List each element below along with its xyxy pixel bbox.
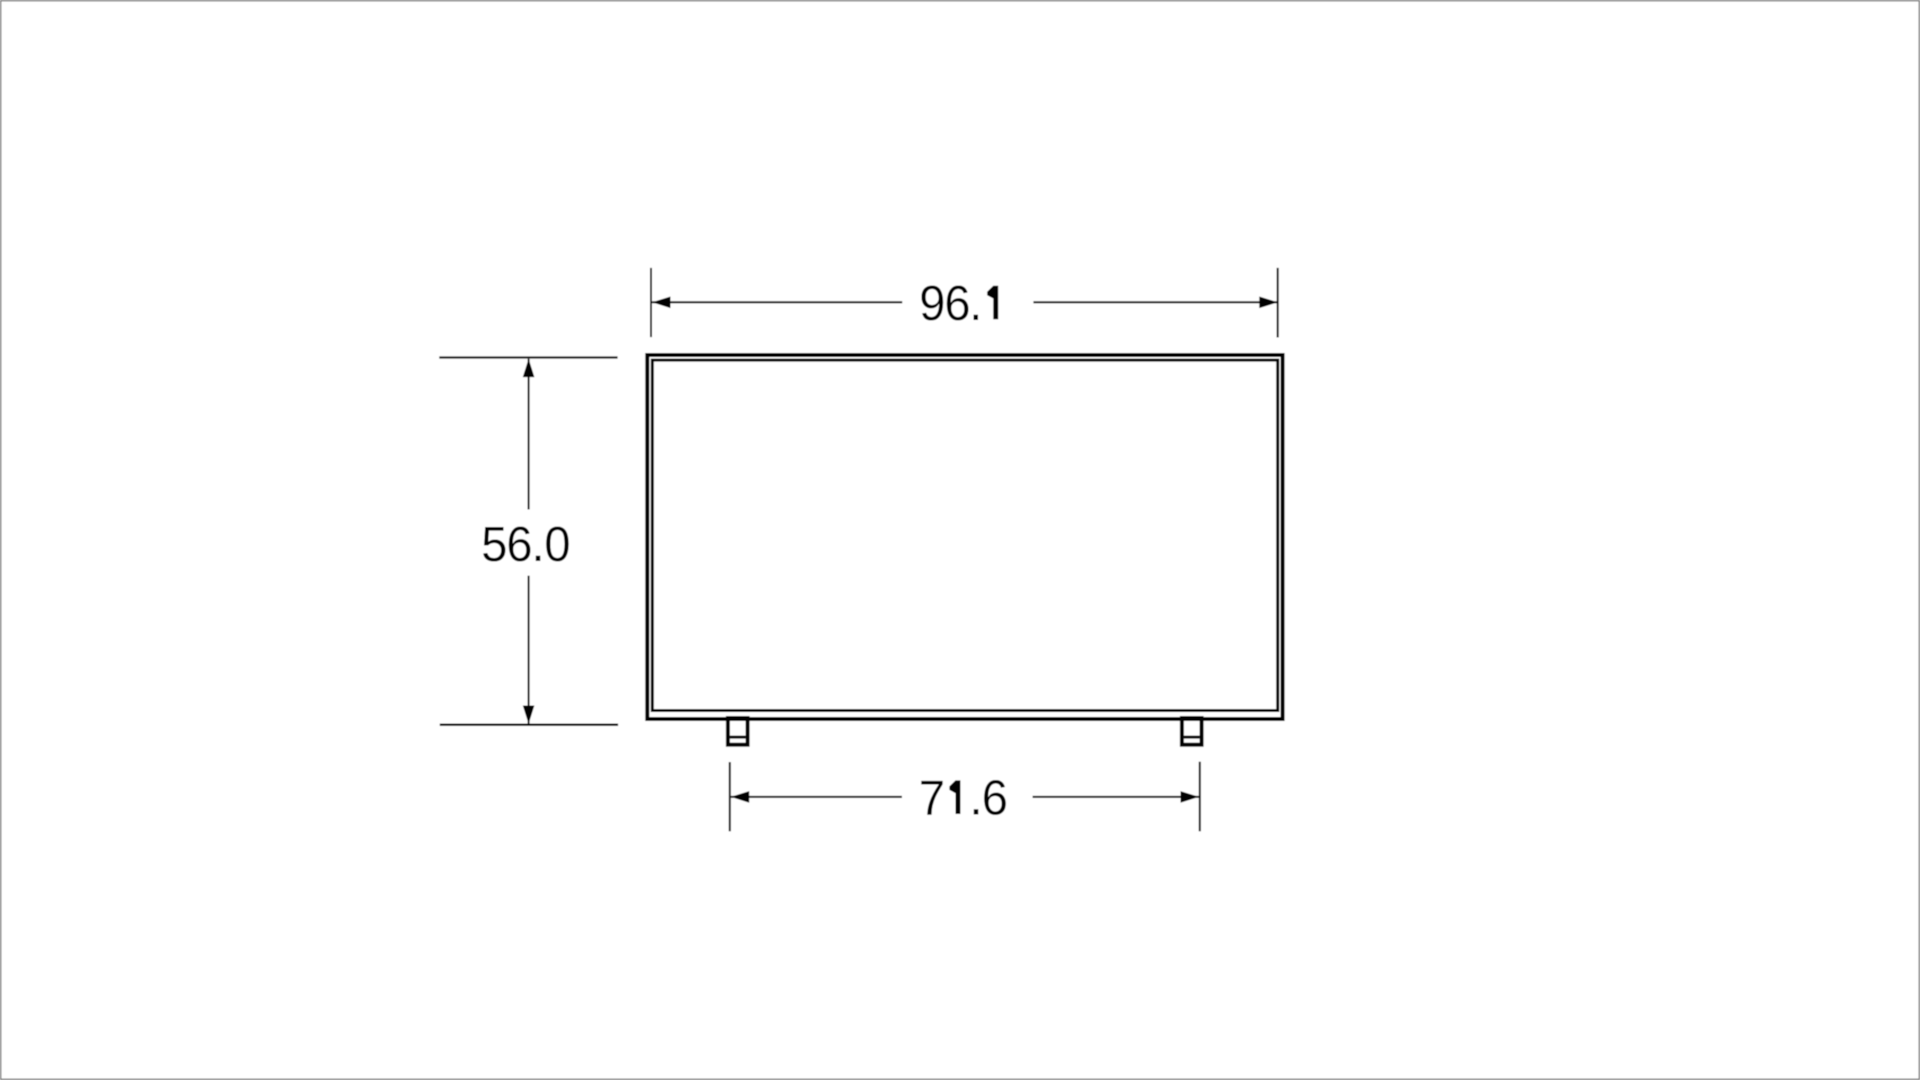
svg-text:6: 6: [506, 517, 532, 572]
svg-text:6: 6: [944, 276, 970, 331]
svg-text:5: 5: [481, 517, 507, 572]
svg-text:.: .: [969, 771, 982, 826]
svg-text:.: .: [969, 276, 982, 331]
svg-text:6: 6: [982, 771, 1008, 826]
svg-text:9: 9: [919, 276, 945, 331]
svg-text:7: 7: [919, 771, 945, 826]
svg-text:0: 0: [544, 517, 570, 572]
svg-text:.: .: [531, 517, 544, 572]
